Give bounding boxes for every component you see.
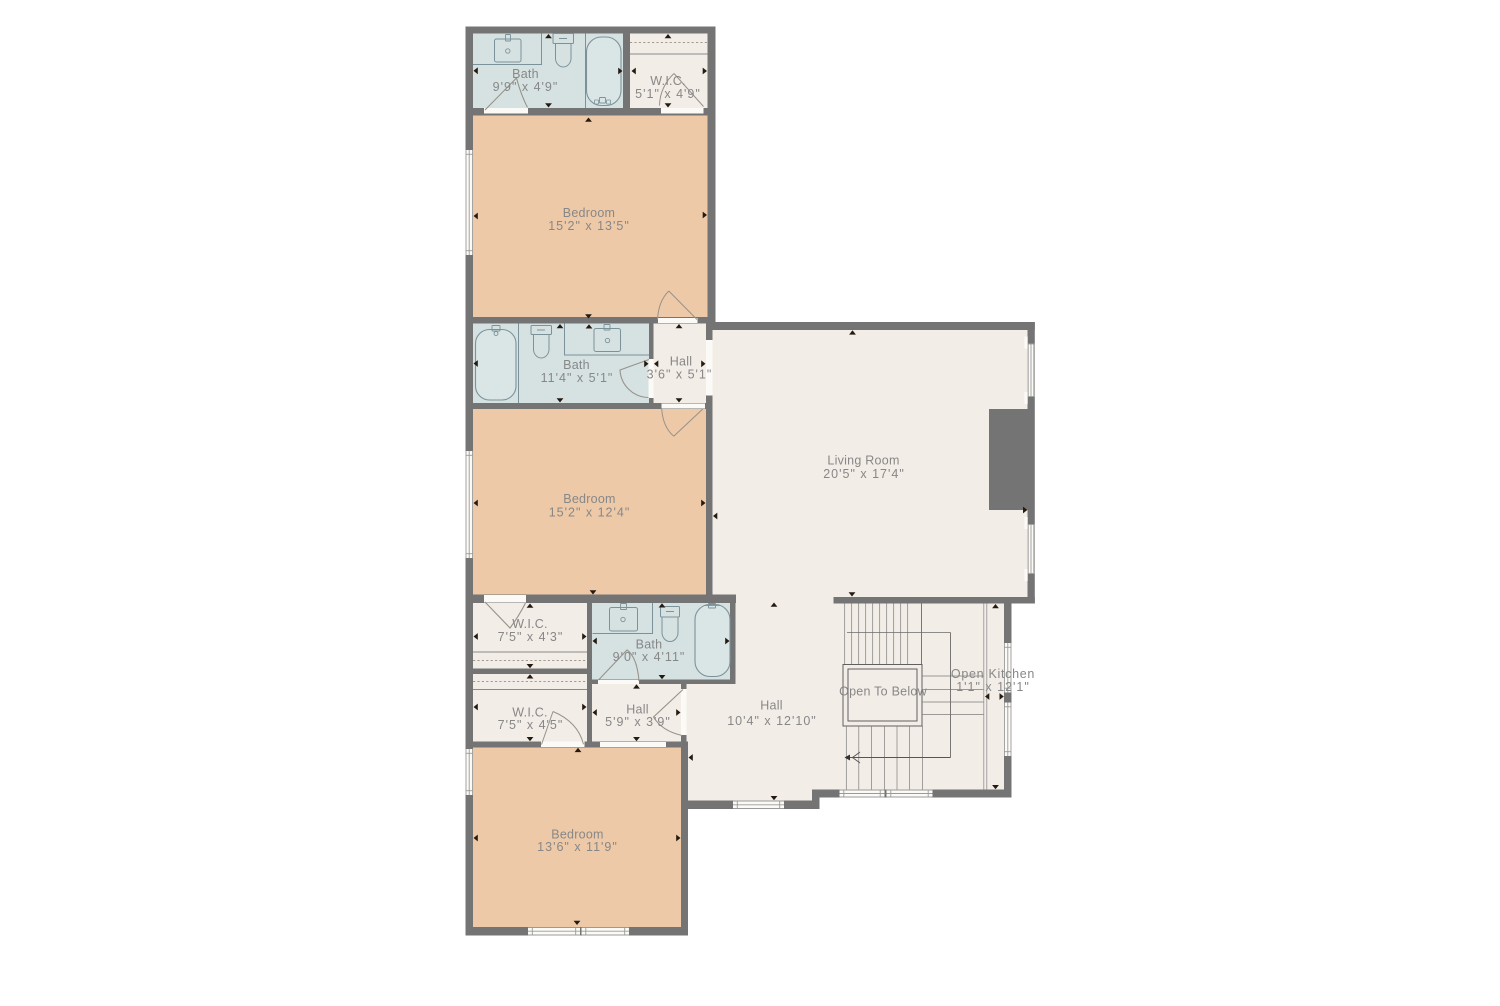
svg-text:Hall: Hall <box>760 699 783 713</box>
svg-text:9'0" x 4'11": 9'0" x 4'11" <box>613 650 686 664</box>
svg-text:Open To Below: Open To Below <box>839 685 928 699</box>
svg-text:15'2" x 12'4": 15'2" x 12'4" <box>549 506 631 520</box>
svg-text:10'4" x 12'10": 10'4" x 12'10" <box>727 714 817 728</box>
svg-text:Bedroom: Bedroom <box>563 492 615 506</box>
svg-text:7'5" x 4'5": 7'5" x 4'5" <box>498 718 564 732</box>
svg-text:Hall: Hall <box>670 355 693 369</box>
svg-text:Open Kitchen: Open Kitchen <box>951 667 1035 681</box>
svg-text:11'4" x 5'1": 11'4" x 5'1" <box>541 371 614 385</box>
svg-text:Bath: Bath <box>512 67 539 81</box>
svg-text:3'6" x 5'1": 3'6" x 5'1" <box>647 368 713 382</box>
svg-text:Bedroom: Bedroom <box>563 206 615 220</box>
svg-text:Bath: Bath <box>563 358 590 372</box>
svg-text:15'2" x 13'5": 15'2" x 13'5" <box>548 219 630 233</box>
svg-text:Living Room: Living Room <box>827 454 899 468</box>
svg-text:5'1" x 4'9": 5'1" x 4'9" <box>635 87 701 101</box>
svg-text:9'9" x 4'9": 9'9" x 4'9" <box>493 80 559 94</box>
svg-text:1'1" x 12'1": 1'1" x 12'1" <box>956 680 1030 694</box>
svg-text:W.I.C.: W.I.C. <box>650 74 686 88</box>
svg-text:5'9" x 3'9": 5'9" x 3'9" <box>605 715 671 729</box>
svg-text:20'5" x 17'4": 20'5" x 17'4" <box>823 467 905 481</box>
svg-text:W.I.C.: W.I.C. <box>512 617 548 631</box>
svg-text:7'5" x 4'3": 7'5" x 4'3" <box>498 630 564 644</box>
svg-text:13'6" x 11'9": 13'6" x 11'9" <box>537 840 618 854</box>
